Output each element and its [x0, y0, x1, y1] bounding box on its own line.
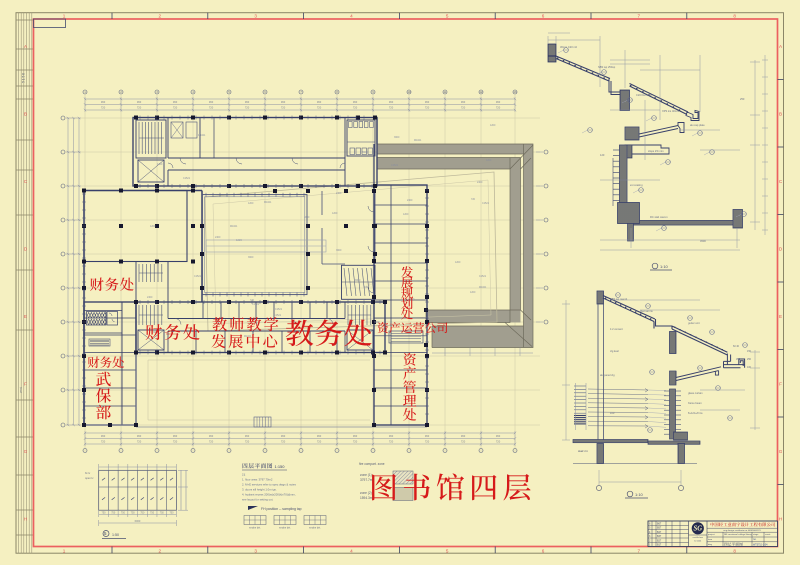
svg-text:fire compart. zone: fire compart. zone	[359, 462, 385, 466]
svg-text:750: 750	[160, 512, 165, 515]
svg-text:360: 360	[353, 434, 358, 438]
svg-text:1: 1	[63, 14, 66, 19]
svg-text:1200: 1200	[150, 225, 156, 228]
svg-text:360: 360	[137, 100, 142, 104]
svg-text:2. M+E services refer to spec: 2. M+E services refer to spec dwgs & not…	[242, 483, 296, 487]
svg-text:stage: stage	[753, 533, 759, 536]
svg-text:1200: 1200	[470, 291, 476, 294]
svg-text:6: 6	[542, 14, 545, 19]
svg-text:B: B	[779, 112, 782, 117]
svg-text:thermal ins: thermal ins	[640, 309, 653, 313]
svg-text:360: 360	[353, 100, 358, 104]
svg-text:360: 360	[173, 100, 178, 104]
svg-text:6: 6	[542, 549, 545, 554]
svg-text:3600: 3600	[355, 279, 361, 282]
svg-text:150: 150	[747, 350, 752, 353]
svg-text:720: 720	[245, 106, 250, 110]
svg-text:1200: 1200	[403, 213, 409, 216]
svg-text:720: 720	[209, 440, 214, 444]
svg-text:M1021: M1021	[264, 201, 272, 204]
svg-text:smoke det.: smoke det.	[279, 527, 291, 530]
svg-text:see layout for setting out.: see layout for setting out.	[242, 498, 273, 502]
svg-text:360: 360	[281, 434, 286, 438]
svg-text:360: 360	[173, 434, 178, 438]
svg-text:720: 720	[137, 440, 142, 444]
svg-text:1:50: 1:50	[112, 533, 119, 537]
svg-text:project: project	[708, 533, 715, 536]
svg-text:350: 350	[736, 357, 741, 361]
svg-text:1:150: 1:150	[275, 464, 286, 469]
svg-text:NN vocational college library: NN vocational college library	[724, 533, 753, 536]
svg-text:120: 120	[600, 153, 605, 157]
svg-text:720: 720	[173, 106, 178, 110]
svg-text:H: H	[779, 517, 782, 522]
svg-text:SG: SG	[693, 526, 702, 533]
svg-text:F: F	[779, 382, 782, 387]
svg-text:B27: B27	[657, 539, 662, 542]
svg-text:750: 750	[140, 512, 145, 515]
svg-text:B37: B37	[657, 535, 662, 538]
svg-text:360: 360	[389, 100, 394, 104]
svg-text:C1521: C1521	[479, 275, 487, 278]
svg-text:360: 360	[101, 434, 106, 438]
svg-text:3600: 3600	[304, 216, 310, 219]
svg-text:750: 750	[169, 512, 174, 515]
svg-text:C1521: C1521	[391, 164, 399, 167]
svg-text:3. doors sill height 1.0m typ.: 3. doors sill height 1.0m typ.	[242, 488, 277, 492]
svg-text:E: E	[779, 314, 782, 319]
svg-text:3: 3	[254, 549, 257, 554]
svg-text:E: E	[24, 314, 27, 319]
svg-text:frame beam: frame beam	[688, 401, 702, 405]
svg-text:fix lv: fix lv	[85, 471, 91, 475]
svg-text:C1521: C1521	[183, 177, 191, 180]
svg-text:SBS wp 250up: SBS wp 250up	[598, 65, 616, 69]
svg-text:250: 250	[747, 358, 752, 361]
svg-text:B17: B17	[657, 544, 662, 547]
svg-text:H: H	[24, 517, 27, 522]
svg-text:100: 100	[610, 411, 615, 415]
svg-text:360: 360	[461, 434, 466, 438]
svg-text:8: 8	[733, 14, 736, 19]
svg-text:360: 360	[461, 100, 466, 104]
svg-text:ext coating: ext coating	[630, 183, 643, 187]
svg-text:720: 720	[101, 106, 106, 110]
svg-text:360: 360	[496, 434, 501, 438]
svg-text:SBS wp memb: SBS wp memb	[610, 297, 628, 301]
svg-text:2400: 2400	[147, 296, 153, 299]
svg-text:720: 720	[496, 440, 501, 444]
svg-text:360: 360	[317, 100, 322, 104]
svg-text:750: 750	[121, 512, 126, 515]
svg-text:720: 720	[173, 440, 178, 444]
svg-text:zone (1): zone (1)	[360, 473, 372, 477]
svg-text:gutter unit: gutter unit	[688, 321, 700, 325]
svg-text:eng design certificate no. A14: eng design certificate no. A145000123	[723, 529, 761, 532]
svg-text:750: 750	[111, 512, 116, 515]
svg-text:B67: B67	[657, 522, 662, 525]
svg-text:2: 2	[159, 549, 162, 554]
svg-text:1:10: 1:10	[635, 492, 644, 497]
svg-text:7: 7	[638, 14, 641, 19]
svg-text:M1021: M1021	[479, 286, 487, 289]
svg-text:6000: 6000	[135, 519, 141, 523]
svg-text:1200: 1200	[248, 202, 254, 205]
svg-text:720: 720	[137, 106, 142, 110]
svg-text:1200: 1200	[157, 163, 163, 166]
svg-text:B: B	[24, 112, 27, 117]
svg-text:30mm C20 mtl: 30mm C20 mtl	[560, 45, 577, 49]
svg-text:1: 1	[63, 549, 66, 554]
svg-text:720: 720	[317, 106, 322, 110]
svg-text:5: 5	[446, 14, 449, 19]
svg-text:2400: 2400	[215, 236, 221, 239]
svg-text:4: 4	[350, 14, 353, 19]
svg-text:C1521: C1521	[252, 303, 260, 306]
svg-text:360: 360	[209, 100, 214, 104]
svg-text:WT575J-1-04: WT575J-1-04	[753, 544, 768, 547]
svg-text:8: 8	[733, 549, 736, 554]
svg-text:3600: 3600	[362, 151, 368, 154]
svg-text:720: 720	[281, 106, 286, 110]
svg-text:1200: 1200	[490, 124, 496, 127]
svg-text:720: 720	[281, 440, 286, 444]
svg-text:2400: 2400	[477, 181, 483, 184]
svg-text:proj: proj	[19, 387, 23, 392]
svg-text:4: 4	[350, 549, 353, 554]
svg-text:5 1 5 6: 5 1 5 6	[22, 73, 26, 83]
svg-text:3: 3	[254, 14, 257, 19]
svg-text:250: 250	[740, 97, 745, 101]
svg-text:4500: 4500	[700, 239, 706, 243]
svg-text:lic 0124: lic 0124	[694, 541, 702, 543]
svg-text:item: item	[708, 538, 712, 541]
svg-text:4. hydrant recess 200(w)x200(h: 4. hydrant recess 200(w)x200(h)x70(d)mm,	[242, 493, 296, 497]
svg-text:2400: 2400	[407, 199, 413, 202]
svg-text:720: 720	[389, 106, 394, 110]
svg-text:C1521: C1521	[482, 202, 490, 205]
svg-text:zone (2): zone (2)	[360, 491, 372, 495]
svg-text:3600: 3600	[248, 256, 254, 259]
svg-text:720: 720	[496, 106, 501, 110]
svg-text:RC slab cast-in: RC slab cast-in	[650, 215, 668, 219]
svg-text:360: 360	[317, 434, 322, 438]
svg-text:1200: 1200	[455, 261, 461, 264]
svg-text:720: 720	[461, 440, 466, 444]
svg-text:360: 360	[496, 100, 501, 104]
svg-text:clg keel: clg keel	[610, 349, 619, 353]
svg-text:C1521: C1521	[194, 275, 202, 278]
svg-text:XPS ins 40mm: XPS ins 40mm	[662, 109, 679, 113]
svg-text:3600: 3600	[336, 249, 342, 252]
svg-text:1:2 cement: 1:2 cement	[610, 327, 623, 331]
svg-text:alu panel clg: alu panel clg	[600, 373, 615, 377]
svg-text:no.: no.	[753, 538, 757, 541]
svg-text:720: 720	[425, 440, 430, 444]
svg-text:2400: 2400	[336, 192, 342, 195]
svg-text:2: 2	[159, 14, 162, 19]
svg-text:cert A-class: cert A-class	[693, 536, 703, 539]
svg-text:360: 360	[137, 434, 142, 438]
svg-text:G: G	[779, 449, 783, 454]
svg-text:720: 720	[389, 440, 394, 444]
svg-text:5: 5	[446, 549, 449, 554]
svg-text:1:10: 1:10	[660, 264, 669, 269]
svg-text:G: G	[24, 449, 28, 454]
svg-text:720: 720	[317, 440, 322, 444]
svg-text:720: 720	[245, 440, 250, 444]
svg-text:360: 360	[245, 434, 250, 438]
svg-text:750: 750	[131, 512, 136, 515]
svg-text:C1521: C1521	[275, 308, 283, 311]
svg-text:const.: const.	[765, 533, 771, 536]
svg-text:3600: 3600	[394, 136, 400, 139]
svg-text:alu cap plate: alu cap plate	[690, 123, 705, 127]
svg-text:M1021: M1021	[230, 225, 238, 228]
svg-text:7: 7	[638, 549, 641, 554]
svg-text:360: 360	[425, 100, 430, 104]
svg-text:B47: B47	[657, 531, 662, 534]
svg-text:100: 100	[747, 366, 752, 369]
svg-text:720: 720	[425, 106, 430, 110]
svg-text:M1021: M1021	[198, 134, 206, 137]
svg-text:F: F	[24, 382, 27, 387]
svg-text:720: 720	[250, 299, 255, 302]
svg-text:slope 2% min: slope 2% min	[648, 149, 664, 153]
svg-text:60 40: 60 40	[733, 345, 740, 348]
svg-text:360: 360	[245, 100, 250, 104]
svg-text:720: 720	[353, 106, 358, 110]
svg-text:720: 720	[471, 198, 476, 201]
svg-text:750: 750	[102, 512, 107, 515]
svg-text:720: 720	[209, 106, 214, 110]
svg-text:750: 750	[150, 512, 155, 515]
svg-text:720: 720	[461, 106, 466, 110]
svg-text:720: 720	[101, 440, 106, 444]
svg-text:glass curtain: glass curtain	[688, 391, 703, 395]
svg-text:B57: B57	[657, 527, 662, 530]
svg-text:1200: 1200	[486, 159, 492, 162]
svg-text:360: 360	[209, 434, 214, 438]
svg-text:720: 720	[353, 440, 358, 444]
svg-text:FH position -- sampling tap: FH position -- sampling tap	[261, 507, 302, 511]
svg-text:C20 fine conc: C20 fine conc	[636, 93, 653, 97]
svg-text:stair rm: stair rm	[578, 449, 589, 453]
svg-text:smoke det.: smoke det.	[309, 527, 321, 530]
svg-text:360: 360	[101, 100, 106, 104]
svg-text:open lv: open lv	[85, 476, 94, 480]
svg-text:C1521: C1521	[274, 314, 282, 317]
svg-text:1. floor area: 3797.70m2: 1. floor area: 3797.70m2	[242, 478, 273, 482]
svg-text:8+12A+8 ins: 8+12A+8 ins	[688, 411, 703, 415]
svg-text:M1021: M1021	[414, 139, 422, 142]
svg-text:360: 360	[281, 100, 286, 104]
svg-text:smoke det.: smoke det.	[249, 527, 261, 530]
svg-text:1200: 1200	[332, 212, 338, 215]
svg-text:360: 360	[389, 434, 394, 438]
svg-text:360: 360	[425, 434, 430, 438]
